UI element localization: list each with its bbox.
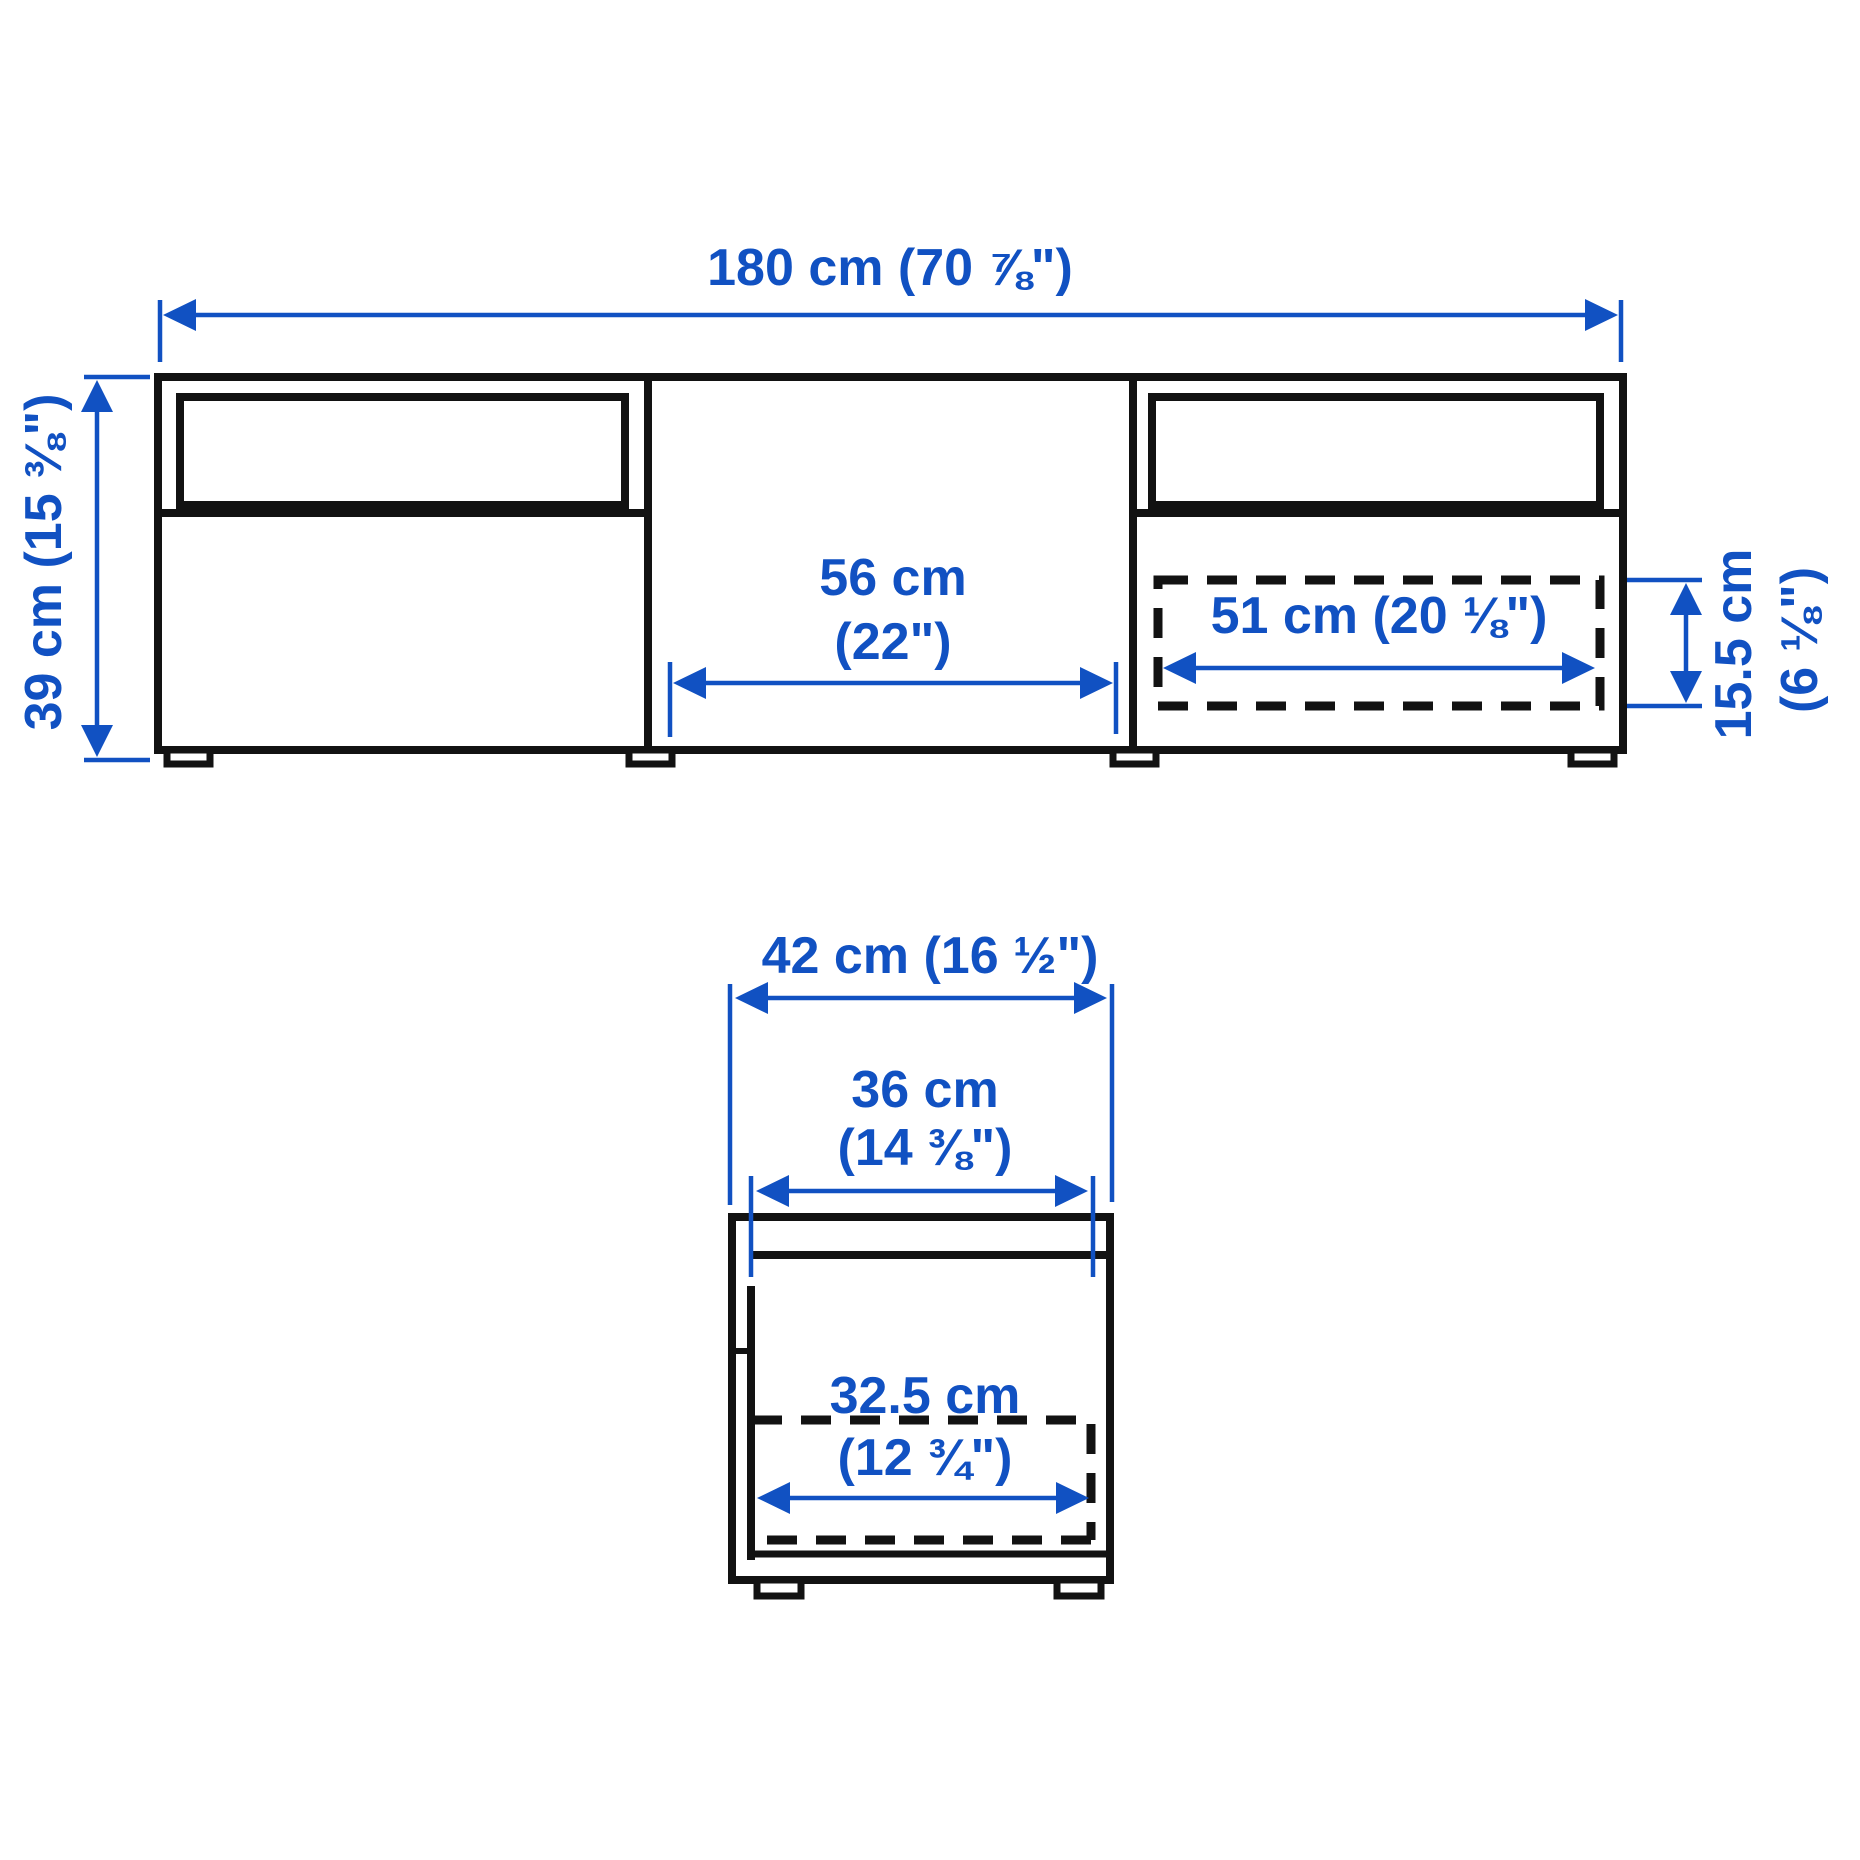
front-drawer-width-dimension-arrow xyxy=(1163,652,1595,684)
side-foot-1 xyxy=(757,1580,801,1596)
front-left-shelf-opening xyxy=(180,397,625,505)
side-inner-depth-label-line1: 36 cm xyxy=(851,1064,998,1116)
front-height-label: 39 cm (15 ⅜") xyxy=(18,394,70,731)
side-inner-depth-label-line2: (14 ⅜") xyxy=(838,1122,1013,1174)
front-drawer-height-label-line1: 15.5 cm xyxy=(1708,549,1760,740)
side-drawer-depth-label-line2: (12 ¾") xyxy=(838,1432,1013,1484)
front-width-dimension-arrow xyxy=(160,299,1621,362)
front-width-label: 180 cm (70 ⅞") xyxy=(707,242,1073,294)
furniture-dimension-diagram: 180 cm (70 ⅞") 39 cm (15 ⅜") 56 cm (22")… xyxy=(0,0,1860,1860)
front-foot-1 xyxy=(167,750,210,764)
side-inner-depth-dimension-arrow xyxy=(751,1175,1093,1277)
front-view-dimensions xyxy=(81,299,1702,760)
front-drawer-height-label-line2: (6 ⅛") xyxy=(1774,567,1826,713)
front-drawer-width-label: 51 cm (20 ⅛") xyxy=(1211,590,1548,642)
front-foot-3 xyxy=(1113,750,1156,764)
front-foot-4 xyxy=(1571,750,1614,764)
front-opening-width-label-line1: 56 cm xyxy=(819,552,966,604)
front-opening-width-dimension-arrow xyxy=(670,662,1116,737)
front-opening-width-label-line2: (22") xyxy=(834,616,951,668)
front-drawer-height-dimension-arrow xyxy=(1627,580,1702,706)
side-drawer-depth-label-line1: 32.5 cm xyxy=(830,1370,1021,1422)
front-foot-2 xyxy=(629,750,672,764)
front-right-shelf-opening xyxy=(1152,397,1600,505)
front-height-dimension-arrow xyxy=(81,377,150,760)
side-foot-2 xyxy=(1057,1580,1101,1596)
side-depth-label: 42 cm (16 ½") xyxy=(762,930,1099,982)
